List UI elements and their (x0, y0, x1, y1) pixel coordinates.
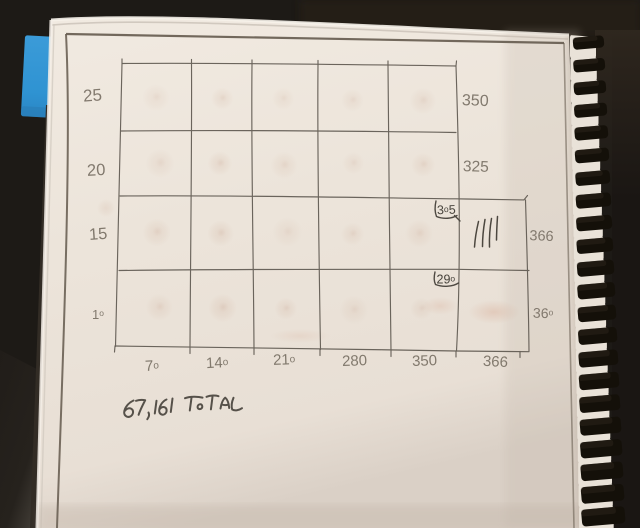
svg-text:325: 325 (463, 158, 489, 176)
svg-text:350: 350 (462, 92, 489, 110)
svg-text:280: 280 (342, 352, 368, 370)
svg-text:366: 366 (483, 353, 509, 371)
svg-text:20: 20 (87, 161, 106, 180)
svg-text:15: 15 (88, 225, 108, 244)
svg-text:366: 366 (529, 228, 554, 245)
svg-text:25: 25 (82, 85, 102, 105)
svg-text:350: 350 (412, 352, 438, 370)
